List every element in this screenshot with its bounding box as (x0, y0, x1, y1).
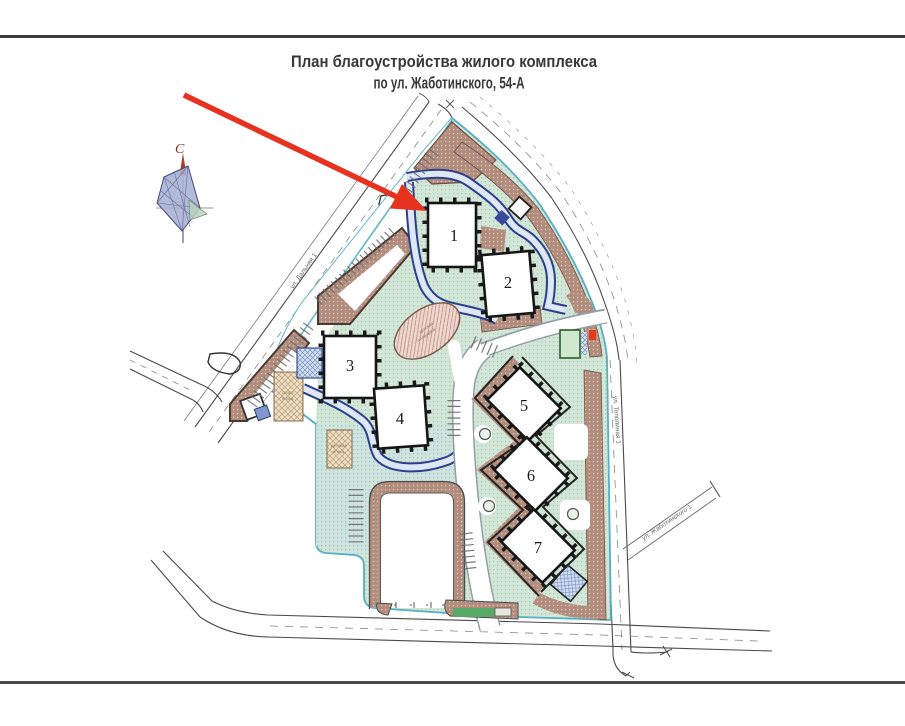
svg-text:C: C (175, 142, 185, 157)
svg-text:7: 7 (534, 538, 542, 557)
svg-text:ул. Жаботинского 1: ул. Жаботинского 1 (640, 502, 693, 542)
svg-text:площ.: площ. (282, 396, 295, 401)
svg-text:4: 4 (396, 409, 404, 428)
svg-text:детская: детская (331, 443, 348, 448)
svg-text:3: 3 (346, 356, 354, 375)
svg-text:по ул. Жаботинского, 54-А: по ул. Жаботинского, 54-А (374, 75, 525, 93)
svg-text:6: 6 (527, 466, 535, 485)
svg-text:1: 1 (450, 226, 458, 245)
svg-text:2: 2 (504, 273, 512, 292)
svg-text:5: 5 (520, 396, 528, 415)
svg-text:площ.: площ. (333, 449, 346, 454)
svg-text:ул. Дальняя 1: ул. Дальняя 1 (289, 252, 319, 291)
svg-text:спорт.: спорт. (282, 390, 294, 395)
svg-text:План благоустройства жилого ко: План благоустройства жилого комплекса (291, 53, 598, 71)
